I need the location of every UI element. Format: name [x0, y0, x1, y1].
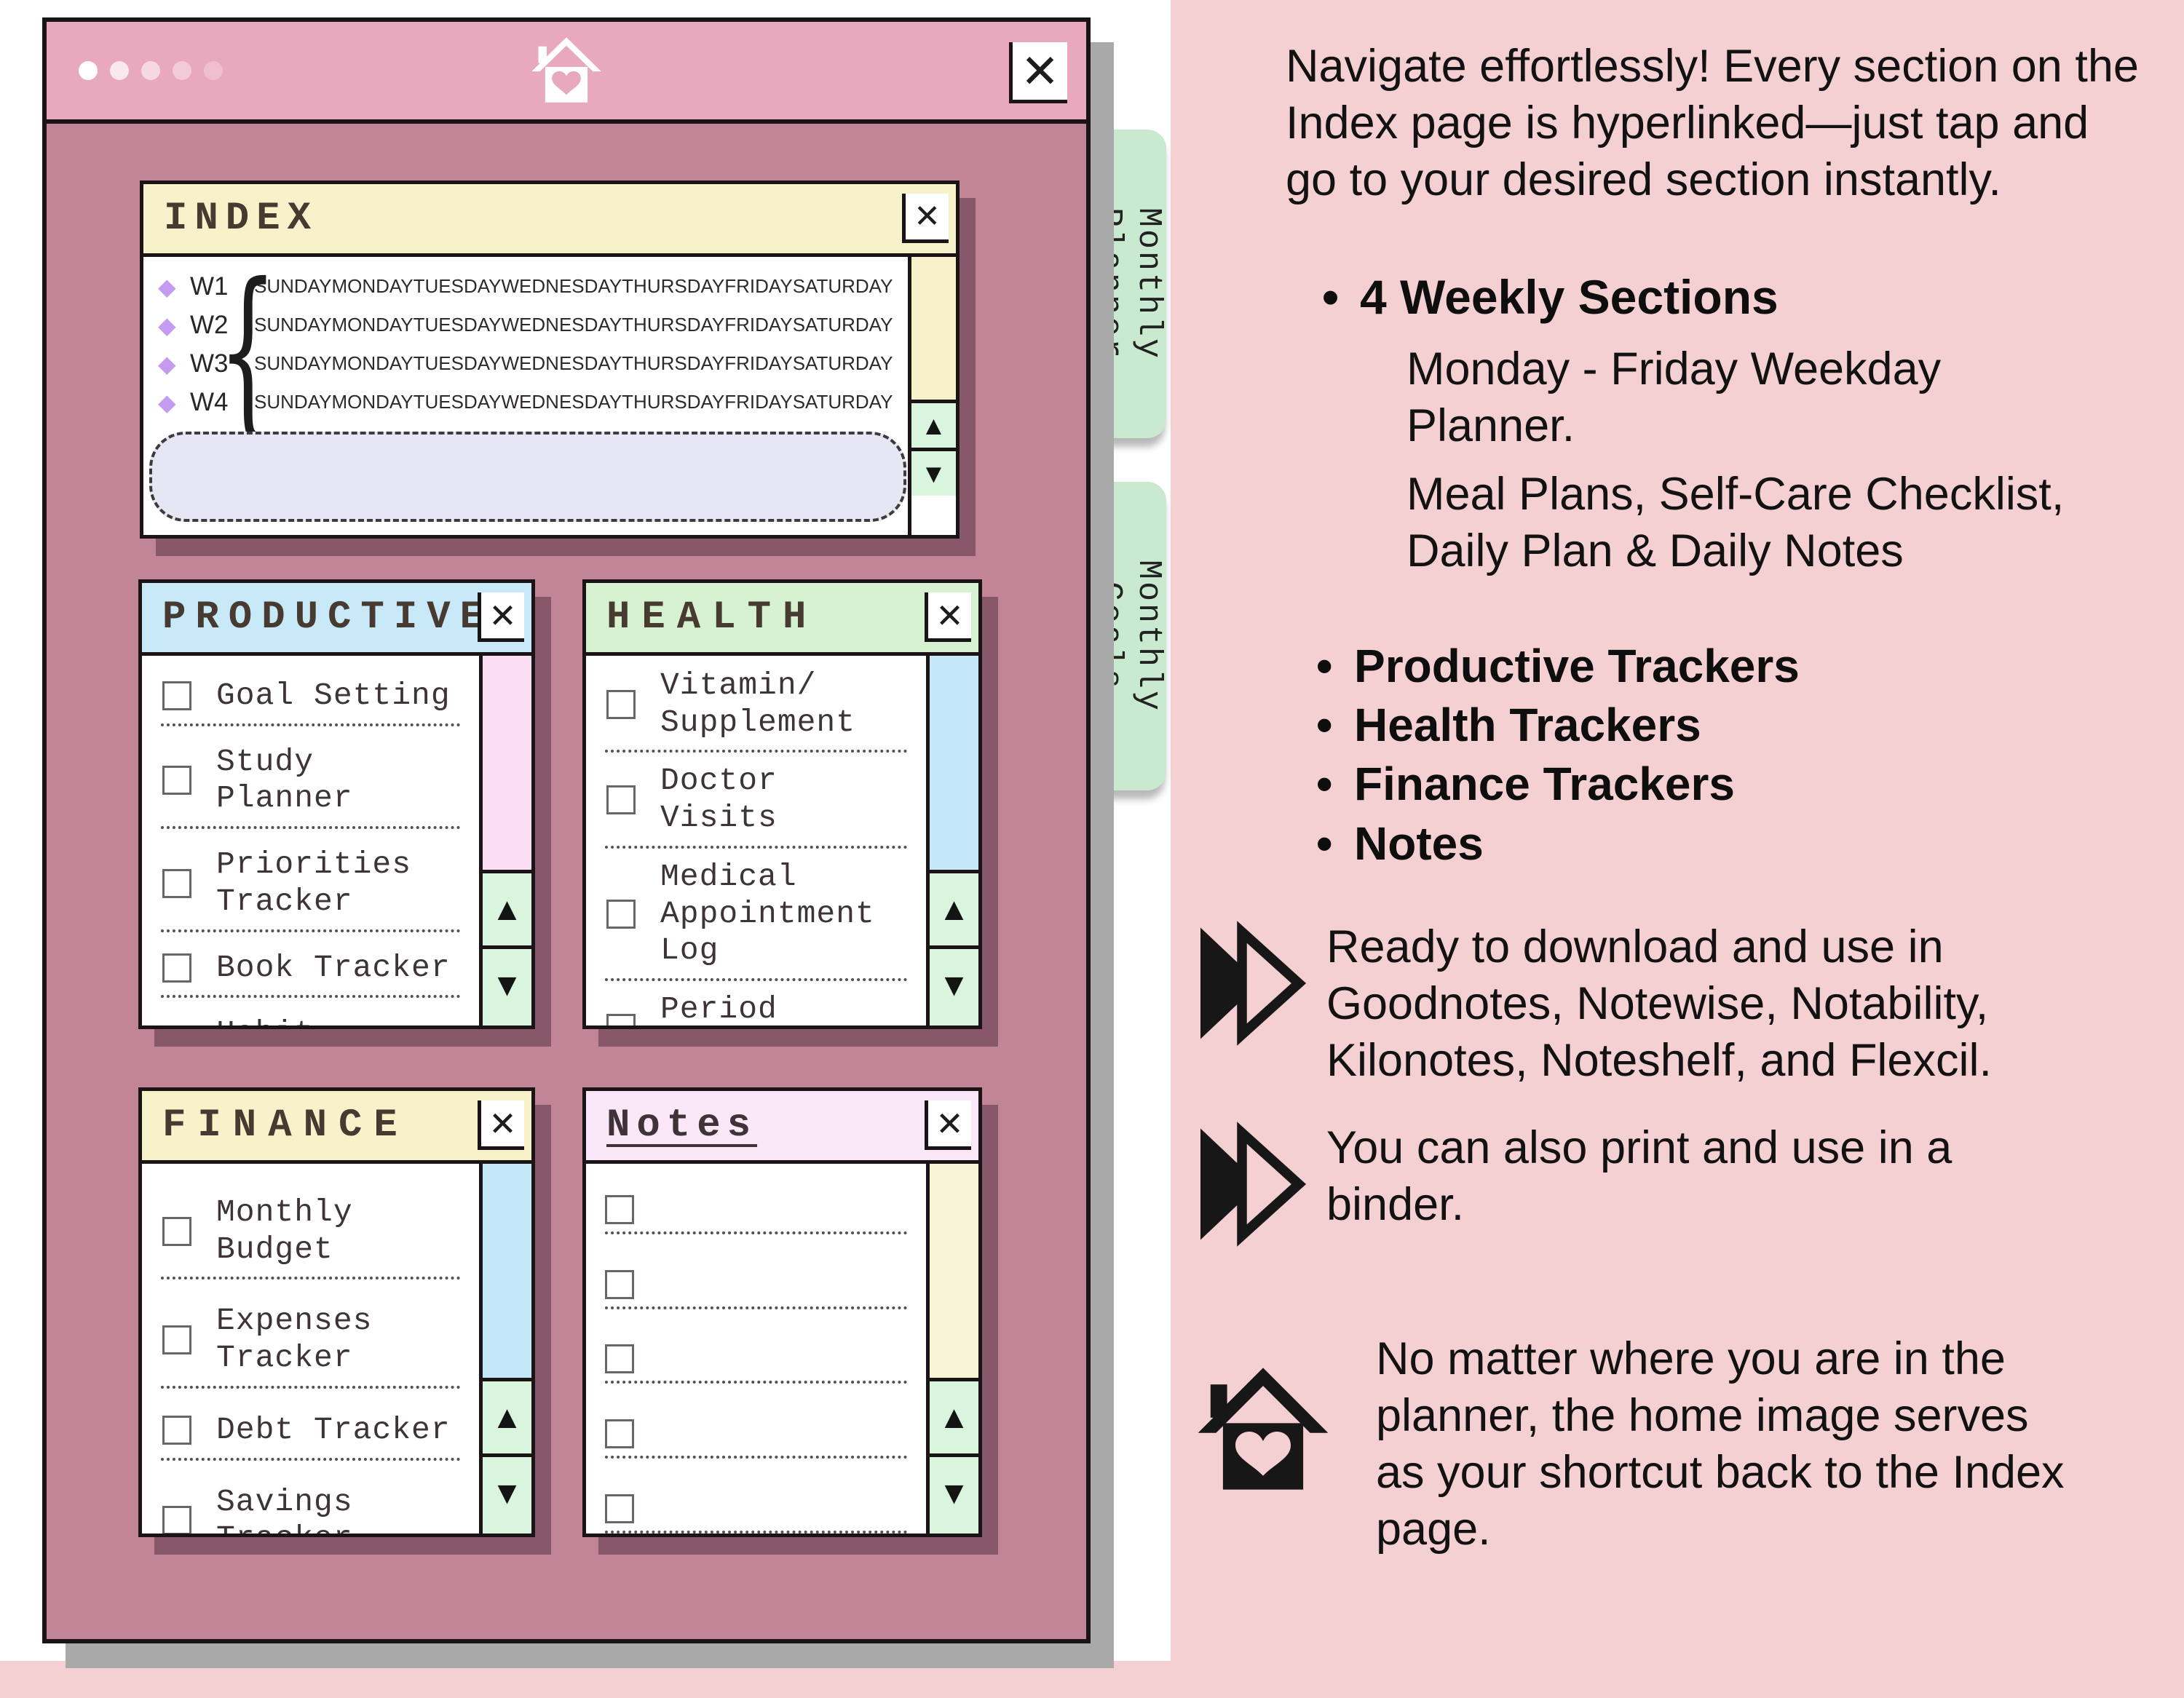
home-icon[interactable]: [529, 32, 604, 111]
productive-items: Goal SettingStudy PlannerPriorities Trac…: [142, 656, 479, 1025]
arrow-down-icon: ▼: [921, 459, 947, 489]
download-callout: Ready to download and use in Goodnotes, …: [1198, 919, 2098, 1089]
scroll-up-button[interactable]: ▲: [930, 870, 978, 945]
day-link[interactable]: FRIDAY: [724, 314, 792, 336]
tracker-item[interactable]: Vitamin/ Supplement: [605, 667, 907, 753]
productive-title: PRODUCTIVE: [142, 595, 493, 640]
note-row[interactable]: [605, 1340, 907, 1384]
tab-monthly-planner[interactable]: Monthly Planner: [1091, 130, 1166, 438]
close-icon: ✕: [935, 599, 964, 632]
arrow-down-icon: ▼: [938, 1475, 970, 1512]
day-link[interactable]: SATURDAY: [793, 391, 893, 413]
checkbox[interactable]: [606, 690, 636, 719]
print-callout-text: You can also print and use in a binder.: [1326, 1119, 2084, 1253]
tracker-item[interactable]: Goal Setting: [161, 678, 460, 726]
scrollbar-track: [483, 1529, 531, 1534]
tracker-item-label[interactable]: Expenses Tracker: [216, 1303, 457, 1376]
weekly-sections-bullet: 4 Weekly Sections: [1360, 269, 1779, 325]
scroll-up-button[interactable]: ▲: [911, 400, 956, 448]
weekly-sub-text: Monday - Friday Weekday Planner.: [1406, 341, 2062, 454]
index-note-area: [149, 432, 906, 522]
checkbox[interactable]: [162, 953, 191, 983]
day-link[interactable]: SUNDAY: [254, 391, 331, 413]
day-link[interactable]: MONDAY: [331, 314, 413, 336]
scrollbar-track: [911, 496, 956, 535]
tracker-item-label[interactable]: Vitamin/ Supplement: [660, 667, 855, 741]
tracker-item[interactable]: Debt Tracker: [161, 1412, 460, 1461]
productive-scrollbar: ▲ ▼: [479, 656, 531, 1025]
day-link[interactable]: MONDAY: [331, 275, 413, 298]
window-dots: [79, 61, 223, 80]
week-rows: ◆W1SUNDAYMONDAYTUESDAYWEDNESDAYTHURSDAYF…: [143, 267, 908, 431]
feature-bullet: Productive Trackers: [1354, 642, 1800, 691]
notes-panel: Notes ✕ ▲ ▼: [582, 1087, 982, 1537]
scroll-up-button[interactable]: ▲: [930, 1378, 978, 1453]
scrollbar-track[interactable]: [483, 656, 531, 870]
intro-text: Navigate effortlessly! Every section on …: [1286, 38, 2152, 208]
arrow-down-icon: ▼: [938, 967, 970, 1004]
checkbox[interactable]: [606, 785, 636, 814]
day-link[interactable]: SUNDAY: [254, 352, 331, 375]
tracker-bullets: Productive TrackersHealth TrackersFinanc…: [1354, 642, 1800, 868]
tracker-item-label[interactable]: Savings Tracker: [216, 1484, 457, 1534]
day-link[interactable]: THURSDAY: [622, 391, 724, 413]
day-link[interactable]: WEDNESDAY: [502, 275, 622, 298]
tracker-item[interactable]: Habit Tracker: [161, 1015, 460, 1025]
scrollbar-track: [930, 1529, 978, 1534]
scroll-down-button[interactable]: ▼: [930, 1453, 978, 1529]
day-link[interactable]: SUNDAY: [254, 275, 331, 298]
checkbox[interactable]: [162, 766, 191, 795]
tracker-item[interactable]: Savings Tracker: [161, 1484, 460, 1534]
home-callout: No matter where you are in the planner, …: [1194, 1316, 2075, 1558]
tracker-item[interactable]: Doctor Visits: [605, 763, 907, 848]
checkbox[interactable]: [605, 1494, 634, 1523]
note-row[interactable]: [605, 1489, 907, 1534]
feature-bullet: Health Trackers: [1354, 701, 1800, 750]
note-row[interactable]: [605, 1190, 907, 1234]
weekly-sub-text: Meal Plans, Self-Care Checklist, Daily P…: [1406, 466, 2105, 579]
day-link[interactable]: TUESDAY: [414, 314, 502, 336]
tracker-item-label[interactable]: Medical Appointment Log: [660, 859, 904, 969]
notes-title: Notes: [586, 1103, 757, 1148]
tab-monthly-goals[interactable]: Monthly Goals: [1091, 482, 1166, 790]
arrow-up-icon: ▲: [921, 410, 947, 441]
day-link[interactable]: THURSDAY: [622, 352, 724, 375]
page: Monthly Planner Monthly Goals ✕ IN: [0, 0, 2184, 1698]
diamond-icon: ◆: [158, 389, 190, 416]
download-callout-text: Ready to download and use in Goodnotes, …: [1326, 919, 2098, 1089]
finance-body: Monthly BudgetExpenses TrackerDebt Track…: [142, 1164, 531, 1534]
arrow-down-icon: ▼: [491, 1475, 523, 1512]
week-row: ◆W1SUNDAYMONDAYTUESDAYWEDNESDAYTHURSDAYF…: [143, 267, 908, 306]
checkbox[interactable]: [605, 1419, 634, 1448]
scrollbar-track[interactable]: [930, 1164, 978, 1378]
dot: [173, 61, 191, 80]
tracker-item-label[interactable]: Goal Setting: [216, 678, 451, 715]
tracker-item[interactable]: Monthly Budget: [161, 1194, 460, 1280]
scroll-down-button[interactable]: ▼: [911, 448, 956, 496]
tracker-item[interactable]: Study Planner: [161, 744, 460, 829]
notes-rows: [586, 1164, 926, 1534]
week-label[interactable]: W2: [190, 311, 241, 340]
home-icon: [1194, 1360, 1332, 1558]
productive-header: PRODUCTIVE ✕: [142, 583, 531, 656]
week-label[interactable]: W3: [190, 349, 241, 378]
window-titlebar: ✕: [47, 22, 1086, 124]
notes-header: Notes ✕: [586, 1091, 978, 1164]
tracker-item-label[interactable]: Habit Tracker: [216, 1015, 457, 1025]
index-title: INDEX: [143, 197, 318, 241]
checkbox[interactable]: [162, 1325, 191, 1354]
health-body: Vitamin/ SupplementDoctor VisitsMedical …: [586, 656, 978, 1025]
day-link[interactable]: WEDNESDAY: [502, 391, 622, 413]
scrollbar-track[interactable]: [483, 1164, 531, 1378]
day-link[interactable]: WEDNESDAY: [502, 314, 622, 336]
home-callout-text: No matter where you are in the planner, …: [1376, 1330, 2075, 1558]
checkbox[interactable]: [605, 1344, 634, 1373]
week-days: SUNDAYMONDAYTUESDAYWEDNESDAYTHURSDAYFRID…: [254, 275, 892, 298]
week-days: SUNDAYMONDAYTUESDAYWEDNESDAYTHURSDAYFRID…: [254, 314, 892, 336]
day-link[interactable]: MONDAY: [331, 352, 413, 375]
checkbox[interactable]: [162, 1506, 191, 1534]
diamond-icon: ◆: [158, 312, 190, 339]
week-row: ◆W3SUNDAYMONDAYTUESDAYWEDNESDAYTHURSDAYF…: [143, 344, 908, 383]
day-link[interactable]: WEDNESDAY: [502, 352, 622, 375]
finance-header: FINANCE ✕: [142, 1091, 531, 1164]
finance-items: Monthly BudgetExpenses TrackerDebt Track…: [142, 1164, 479, 1534]
tracker-item-label[interactable]: Priorities Tracker: [216, 846, 411, 920]
scroll-up-button[interactable]: ▲: [483, 870, 531, 945]
scroll-down-button[interactable]: ▼: [483, 1453, 531, 1529]
scrollbar-track[interactable]: [911, 257, 956, 400]
tracker-item-label[interactable]: Doctor Visits: [660, 763, 904, 836]
dot: [204, 61, 223, 80]
tracker-item-label[interactable]: Monthly Budget: [216, 1194, 457, 1268]
day-link[interactable]: TUESDAY: [414, 275, 502, 298]
checkbox[interactable]: [162, 869, 191, 898]
arrow-up-icon: ▲: [491, 1400, 523, 1436]
index-panel: INDEX ✕ ◆W1SUNDAYMONDAYTUESDAYWEDNESDAYT…: [140, 180, 960, 539]
index-close-button[interactable]: ✕: [902, 194, 949, 243]
window-close-button[interactable]: ✕: [1009, 42, 1067, 103]
health-title: HEALTH: [586, 595, 818, 640]
index-body: ◆W1SUNDAYMONDAYTUESDAYWEDNESDAYTHURSDAYF…: [143, 257, 956, 535]
tracker-item-label[interactable]: Period Tracker: [660, 991, 904, 1025]
bottom-strip: [0, 1661, 2184, 1698]
day-link[interactable]: SATURDAY: [793, 314, 893, 336]
productive-body: Goal SettingStudy PlannerPriorities Trac…: [142, 656, 531, 1025]
finance-scrollbar: ▲ ▼: [479, 1164, 531, 1534]
week-days: SUNDAYMONDAYTUESDAYWEDNESDAYTHURSDAYFRID…: [254, 352, 892, 375]
dot: [141, 61, 160, 80]
close-icon: ✕: [914, 201, 941, 233]
day-link[interactable]: FRIDAY: [724, 391, 792, 413]
tracker-item[interactable]: Expenses Tracker: [161, 1303, 460, 1388]
finance-close-button[interactable]: ✕: [478, 1100, 524, 1150]
print-callout: You can also print and use in a binder.: [1198, 1119, 2084, 1253]
week-label[interactable]: W1: [190, 272, 241, 301]
scroll-down-button[interactable]: ▼: [483, 945, 531, 1021]
day-link[interactable]: MONDAY: [331, 391, 413, 413]
day-link[interactable]: FRIDAY: [724, 352, 792, 375]
tracker-item[interactable]: Book Tracker: [161, 950, 460, 999]
checkbox[interactable]: [605, 1195, 634, 1224]
index-scrollbar: ▲ ▼: [908, 257, 956, 535]
close-icon: ✕: [488, 1107, 517, 1140]
dot: [110, 61, 129, 80]
diamond-icon: ◆: [158, 273, 190, 301]
checkbox[interactable]: [606, 1014, 636, 1025]
scrollbar-track[interactable]: [930, 656, 978, 870]
week-label[interactable]: W4: [190, 388, 241, 417]
scroll-down-button[interactable]: ▼: [930, 945, 978, 1021]
arrow-up-icon: ▲: [938, 1400, 970, 1436]
finance-panel: FINANCE ✕ Monthly BudgetExpenses Tracker…: [138, 1087, 535, 1537]
diamond-icon: ◆: [158, 350, 190, 378]
health-header: HEALTH ✕: [586, 583, 978, 656]
notes-close-button[interactable]: ✕: [925, 1100, 971, 1150]
day-link[interactable]: FRIDAY: [724, 275, 792, 298]
double-arrow-icon: [1198, 919, 1307, 1089]
day-link[interactable]: SATURDAY: [793, 275, 893, 298]
planner-window: ✕ INDEX ✕ ◆W1SUNDAYMONDAYTUESDAYWEDNESDA…: [42, 17, 1091, 1643]
day-link[interactable]: TUESDAY: [414, 391, 502, 413]
tracker-item-label[interactable]: Debt Tracker: [216, 1412, 451, 1449]
health-panel: HEALTH ✕ Vitamin/ SupplementDoctor Visit…: [582, 579, 982, 1029]
checkbox[interactable]: [606, 900, 636, 929]
day-link[interactable]: SUNDAY: [254, 314, 331, 336]
arrow-up-icon: ▲: [491, 892, 523, 928]
tab-monthly-planner-label: Monthly Planner: [1089, 207, 1168, 360]
week-row: ◆W2SUNDAYMONDAYTUESDAYWEDNESDAYTHURSDAYF…: [143, 306, 908, 344]
tracker-item-label[interactable]: Book Tracker: [216, 950, 451, 987]
scrollbar-track: [930, 1021, 978, 1025]
week-days: SUNDAYMONDAYTUESDAYWEDNESDAYTHURSDAYFRID…: [254, 391, 892, 413]
scroll-up-button[interactable]: ▲: [483, 1378, 531, 1453]
productive-close-button[interactable]: ✕: [478, 592, 524, 642]
productive-panel: PRODUCTIVE ✕ Goal SettingStudy PlannerPr…: [138, 579, 535, 1029]
tracker-item[interactable]: Priorities Tracker: [161, 846, 460, 932]
arrow-down-icon: ▼: [491, 967, 523, 1004]
note-row[interactable]: [605, 1265, 907, 1309]
double-arrow-icon: [1198, 1119, 1307, 1253]
health-scrollbar: ▲ ▼: [926, 656, 978, 1025]
tracker-item[interactable]: Medical Appointment Log: [605, 859, 907, 981]
day-link[interactable]: SATURDAY: [793, 352, 893, 375]
arrow-up-icon: ▲: [938, 892, 970, 928]
note-row[interactable]: [605, 1414, 907, 1459]
tracker-item[interactable]: Period Tracker: [605, 991, 907, 1025]
health-items: Vitamin/ SupplementDoctor VisitsMedical …: [586, 656, 926, 1025]
finance-title: FINANCE: [142, 1103, 409, 1148]
checkbox[interactable]: [605, 1270, 634, 1299]
checkbox[interactable]: [162, 1217, 191, 1246]
scrollbar-track: [483, 1021, 531, 1025]
notes-body: ▲ ▼: [586, 1164, 978, 1534]
feature-bullet: Notes: [1354, 820, 1800, 868]
close-icon: ✕: [488, 599, 517, 632]
checkbox[interactable]: [162, 1416, 191, 1445]
marketing-panel: Navigate effortlessly! Every section on …: [1194, 29, 2162, 1659]
day-link[interactable]: THURSDAY: [622, 314, 724, 336]
tab-monthly-goals-label: Monthly Goals: [1089, 560, 1168, 713]
feature-bullet: Finance Trackers: [1354, 760, 1800, 809]
day-link[interactable]: THURSDAY: [622, 275, 724, 298]
close-icon: ✕: [935, 1107, 964, 1140]
week-row: ◆W4SUNDAYMONDAYTUESDAYWEDNESDAYTHURSDAYF…: [143, 383, 908, 421]
checkbox[interactable]: [162, 681, 191, 710]
day-link[interactable]: TUESDAY: [414, 352, 502, 375]
health-close-button[interactable]: ✕: [925, 592, 971, 642]
index-header: INDEX ✕: [143, 184, 956, 257]
close-icon: ✕: [1021, 48, 1060, 95]
dot: [79, 61, 98, 80]
tracker-item-label[interactable]: Study Planner: [216, 744, 457, 817]
notes-scrollbar: ▲ ▼: [926, 1164, 978, 1534]
